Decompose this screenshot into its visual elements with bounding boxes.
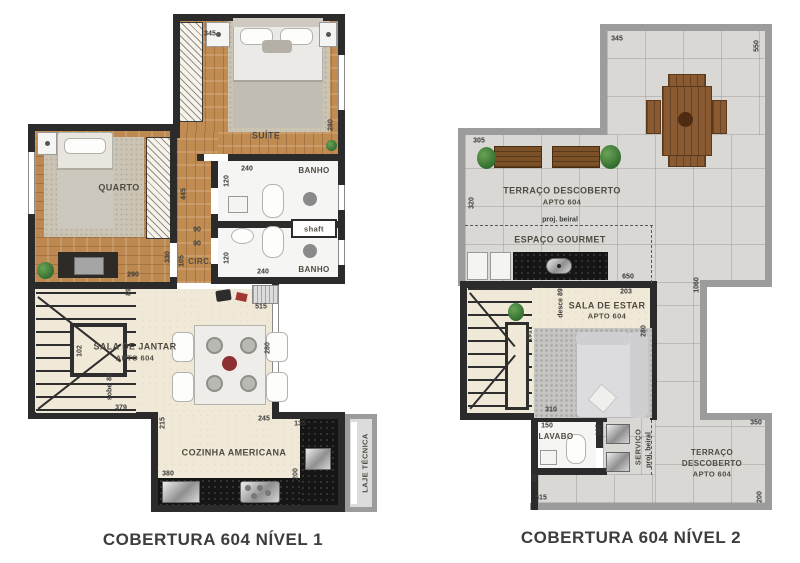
terrace-wall bbox=[530, 503, 772, 510]
dim-banho-top-width: 240 bbox=[241, 166, 253, 173]
terrace-wall bbox=[765, 24, 772, 286]
dim-sala-bottom: 245 bbox=[258, 416, 270, 423]
plan2-title: COBERTURA 604 NÍVEL 2 bbox=[521, 528, 741, 548]
dim-cozinha-top: 135 bbox=[294, 421, 306, 428]
terrace-wall bbox=[600, 24, 772, 31]
wall bbox=[28, 412, 158, 419]
wall bbox=[460, 413, 538, 420]
quarto-laptop bbox=[74, 257, 104, 275]
dim-corridor: 445 bbox=[181, 188, 188, 200]
banho-bottom-sink bbox=[231, 228, 254, 244]
dining-chair bbox=[266, 372, 288, 402]
kitchen-cooktop-right bbox=[305, 448, 331, 470]
dim-estar-top: 203 bbox=[620, 289, 632, 296]
lavabo-sink bbox=[540, 450, 557, 465]
dining-plate bbox=[206, 337, 223, 354]
estar-sofa-arm bbox=[576, 332, 630, 345]
dim-circ-height: 105 bbox=[179, 255, 186, 267]
circ-label: CIRC. bbox=[188, 258, 212, 266]
suite-bed-headboard bbox=[233, 18, 323, 27]
servico-tank bbox=[606, 452, 630, 472]
terraco-top-sublabel: APTO 604 bbox=[543, 198, 582, 206]
laje-tecnica-label: LAJE TÉCNICA bbox=[361, 433, 369, 492]
dining-plate bbox=[240, 375, 257, 392]
proj-beiral-line-h bbox=[465, 225, 653, 226]
terrace-plant bbox=[477, 147, 496, 169]
dim-stairs-sobe: 89 bbox=[107, 373, 114, 381]
banho-bottom-shower bbox=[303, 244, 317, 258]
quarto-closet bbox=[146, 137, 172, 239]
suite-plant bbox=[326, 140, 337, 151]
dim-sala-right: 280 bbox=[265, 342, 272, 354]
dim-banho-bottom-width: 240 bbox=[257, 269, 269, 276]
dining-centerpiece bbox=[222, 356, 237, 371]
dim-lavabo-width: 150 bbox=[541, 423, 553, 430]
stove-burner bbox=[251, 493, 257, 499]
gourmet-grill-knob bbox=[557, 264, 561, 268]
espaco-gourmet-label: ESPAÇO GOURMET bbox=[514, 236, 605, 245]
banho-top-label: BANHO bbox=[298, 167, 329, 175]
dim-terrace-left-top: 305 bbox=[473, 138, 485, 145]
banho-top-window bbox=[338, 185, 345, 210]
terraco-bottom-label3: APTO 604 bbox=[693, 470, 732, 478]
dim-bottom-width: 515 bbox=[535, 495, 547, 502]
gourmet-cabinet bbox=[467, 252, 488, 280]
dining-chair bbox=[172, 372, 194, 402]
sala-jantar-label: SALA DE JANTAR bbox=[93, 343, 176, 352]
terrace-wall bbox=[707, 413, 772, 420]
sala-estar-sublabel: APTO 604 bbox=[588, 312, 627, 320]
dim-cozinha-left: 215 bbox=[160, 417, 167, 429]
estar-sofa-back bbox=[630, 332, 648, 418]
desce-label: desce 89 bbox=[558, 288, 565, 318]
suite-nightstand-left-lamp bbox=[216, 32, 221, 37]
proj-beiral-label: proj. beiral bbox=[542, 217, 578, 224]
terrace-wall bbox=[458, 128, 465, 286]
stove-burner bbox=[257, 485, 263, 491]
suite-door-gap bbox=[204, 154, 228, 161]
banho-bottom-door-gap bbox=[211, 238, 218, 264]
quarto-plant bbox=[37, 262, 54, 279]
terrace-wall bbox=[765, 413, 772, 510]
dim-estar-bottom: 310 bbox=[545, 407, 557, 414]
sala-decor-dark bbox=[215, 289, 231, 302]
dim-suite-width: 345 bbox=[204, 31, 216, 38]
cozinha-label: COZINHA AMERICANA bbox=[182, 449, 287, 458]
wall bbox=[338, 412, 345, 512]
banho-top-door-gap bbox=[211, 188, 218, 214]
dim-quarto-height: 330 bbox=[165, 251, 172, 263]
wall bbox=[28, 124, 180, 131]
dim-banho-top-height: 120 bbox=[224, 175, 231, 187]
terrace-wall bbox=[700, 280, 707, 420]
stairs-void bbox=[505, 322, 529, 410]
quarto-pillow bbox=[64, 138, 106, 154]
terrace-wall bbox=[600, 24, 607, 131]
dim-terrace-right-height: 1060 bbox=[694, 277, 701, 293]
kitchen-sink bbox=[162, 481, 200, 503]
stairs-diagonal bbox=[469, 292, 515, 347]
banho-bottom-toilet bbox=[262, 226, 284, 258]
proj-beiral-line-v bbox=[651, 225, 652, 283]
quarto-label: QUARTO bbox=[98, 184, 139, 193]
dining-plate bbox=[240, 337, 257, 354]
wall bbox=[272, 412, 345, 419]
wall bbox=[151, 505, 345, 512]
laje-tecnica-strip bbox=[351, 422, 357, 504]
gourmet-cabinet bbox=[490, 252, 511, 280]
suite-closet bbox=[179, 22, 203, 122]
quarto-blanket bbox=[57, 168, 113, 229]
banho-top-toilet bbox=[262, 184, 284, 218]
terrace-floor-bottom bbox=[655, 413, 765, 503]
dining-plate bbox=[206, 375, 223, 392]
dim-stairs-top: 89 bbox=[126, 288, 133, 296]
dim-cozinha-counter: 380 bbox=[162, 471, 174, 478]
stove-burner bbox=[265, 490, 271, 496]
stairs-plant bbox=[508, 303, 524, 321]
sala-jantar-sublabel: APTO 604 bbox=[116, 354, 155, 362]
proj-beiral-v-label: proj. beiral bbox=[646, 432, 653, 468]
sala-halfwall bbox=[252, 285, 279, 304]
dim-terrace-bottom-right: 200 bbox=[757, 491, 764, 503]
quarto-nightstand-lamp bbox=[45, 141, 50, 146]
dim-sala-top: 515 bbox=[255, 304, 267, 311]
dim-circ-a: 90 bbox=[193, 227, 201, 234]
terrace-floor-right bbox=[655, 283, 700, 420]
wall bbox=[460, 281, 467, 420]
dim-suite-height: 280 bbox=[328, 119, 335, 131]
terrace-bench bbox=[494, 146, 542, 168]
shaft-label: shaft bbox=[304, 225, 324, 233]
dim-circ-b: 90 bbox=[193, 241, 201, 248]
dim-terrace-bottom-top: 350 bbox=[750, 420, 762, 427]
dim-quarto-width: 290 bbox=[127, 272, 139, 279]
banho-bottom-window bbox=[338, 240, 345, 265]
sala-estar-label: SALA DE ESTAR bbox=[569, 302, 646, 311]
wall bbox=[211, 277, 345, 284]
dim-terrace-left: 320 bbox=[469, 197, 476, 209]
banho-bottom-label: BANHO bbox=[298, 266, 329, 274]
wall bbox=[531, 468, 607, 475]
dim-terrace-top: 345 bbox=[611, 36, 623, 43]
dim-cozinha-right: 200 bbox=[293, 468, 300, 480]
suite-nightstand-right-lamp bbox=[326, 32, 331, 37]
suite-window bbox=[338, 55, 345, 110]
wall bbox=[28, 282, 177, 289]
plan1-title: COBERTURA 604 NÍVEL 1 bbox=[103, 530, 323, 550]
dim-estar-right: 280 bbox=[641, 325, 648, 337]
terraco-bottom-label1: TERRAÇO bbox=[691, 449, 733, 457]
terraco-bottom-label2: DESCOBERTO bbox=[682, 460, 742, 468]
dim-lavabo-height: 105 bbox=[596, 424, 603, 436]
terraco-top-label: TERRAÇO DESCOBERTO bbox=[503, 187, 621, 196]
dim-stairs-bottom: 379 bbox=[115, 405, 127, 412]
servico-tank bbox=[606, 424, 630, 444]
quarto-window bbox=[28, 152, 35, 214]
servico-label: SERVIÇO bbox=[634, 429, 642, 465]
floorplan-sheet: shaft bbox=[0, 0, 800, 563]
terrace-floor-belowlavabo bbox=[538, 475, 655, 503]
suite-blanket bbox=[233, 80, 323, 128]
terrace-table-bench-left bbox=[646, 100, 661, 134]
suite-cushion bbox=[262, 40, 292, 53]
dim-below-lavabo: 80 bbox=[532, 474, 539, 482]
terrace-table-centerpiece bbox=[678, 112, 693, 127]
wall bbox=[173, 14, 180, 138]
banho-top-sink bbox=[228, 196, 248, 213]
wall bbox=[151, 412, 158, 512]
terrace-wall bbox=[700, 280, 772, 287]
stove-burner bbox=[245, 485, 251, 491]
dim-stairs-width: 102 bbox=[77, 345, 84, 357]
sobe-label: sobe bbox=[107, 384, 114, 400]
dim-stairs2-height: 191 bbox=[527, 330, 534, 342]
terrace-table-bench-right bbox=[712, 100, 727, 134]
dim-terrace-top-right: 550 bbox=[754, 40, 761, 52]
suite-label: SUÍTE bbox=[252, 132, 281, 141]
terrace-wall bbox=[458, 128, 607, 135]
lavabo-label: LAVABO bbox=[539, 433, 574, 441]
dim-gourmet-width: 650 bbox=[622, 274, 634, 281]
terrace-bench bbox=[552, 146, 600, 168]
terrace-plant bbox=[600, 145, 621, 169]
dim-banho-bottom-height: 120 bbox=[224, 252, 231, 264]
banho-top-shower bbox=[303, 192, 317, 206]
